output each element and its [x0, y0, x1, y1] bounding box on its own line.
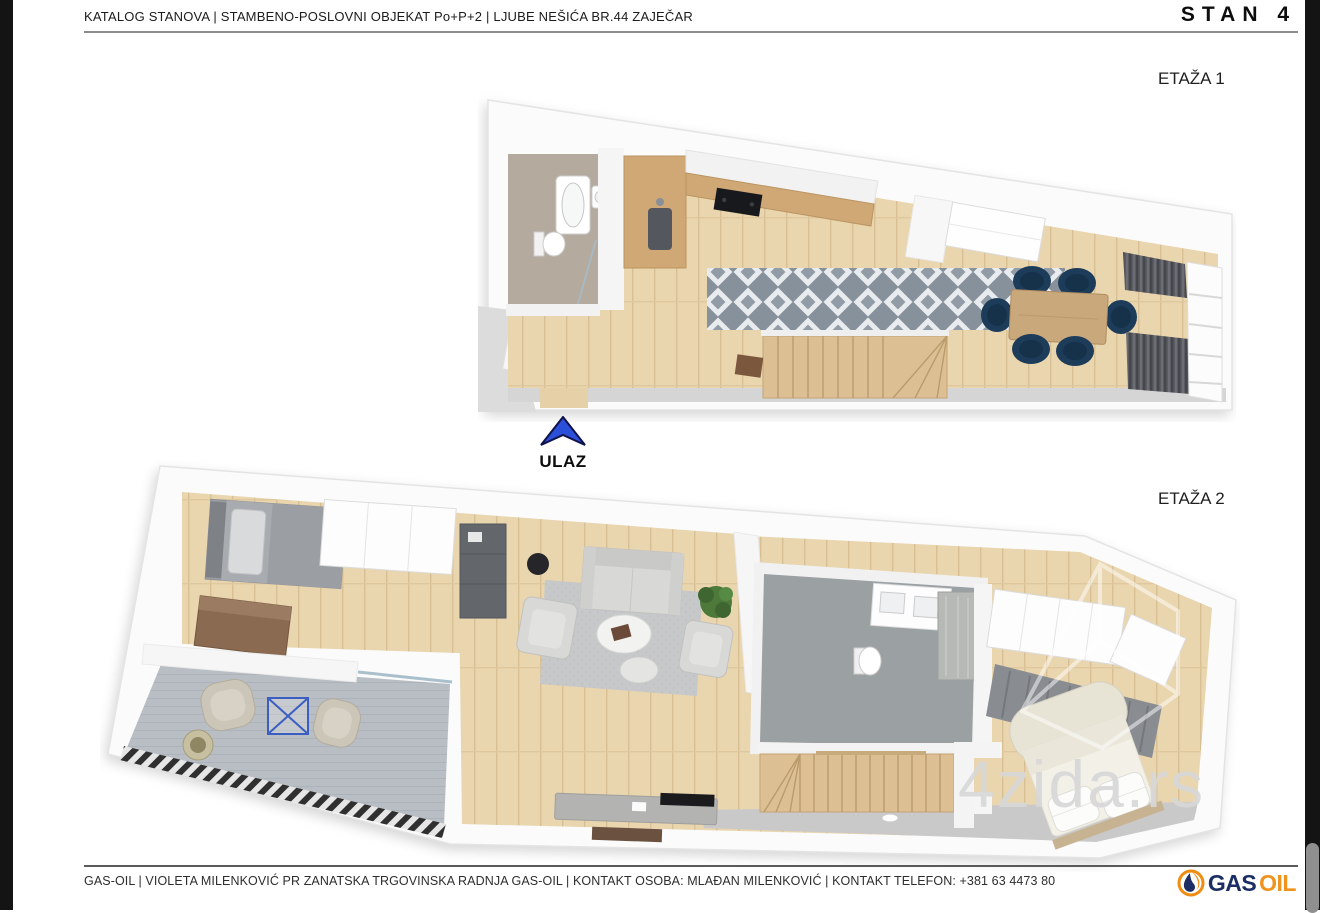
- floor-2-label: ETAŽA 2: [1158, 489, 1225, 509]
- bathroom-south-wall: [506, 304, 600, 316]
- tv-cabinet: [460, 524, 506, 618]
- staircase: [735, 330, 949, 398]
- wardrobe: [320, 499, 456, 574]
- desk: [194, 596, 291, 657]
- kitchen-sink-icon: [648, 208, 672, 250]
- logo-text-oil: OIL: [1259, 870, 1296, 897]
- shower: [938, 592, 976, 680]
- planter-basket: [183, 730, 213, 760]
- window-wall: [1187, 262, 1222, 402]
- pendant-lamp-icon: [527, 553, 549, 575]
- unit-label: STAN 4: [1181, 3, 1296, 27]
- header-divider: [84, 31, 1298, 33]
- toilet-icon: [543, 232, 565, 256]
- floorplan-etaza-1: [478, 92, 1236, 422]
- entrance-marker: ULAZ: [534, 416, 592, 472]
- oil-drop-icon: [1177, 869, 1205, 897]
- watermark-text: 4zida.rs: [958, 746, 1205, 822]
- bathroom-2: [750, 562, 988, 758]
- sofa: [580, 547, 684, 616]
- armchair: [678, 619, 734, 679]
- scrollbar-thumb[interactable]: [1306, 843, 1319, 913]
- floor-1-label: ETAŽA 1: [1158, 69, 1225, 89]
- bathroom-kitchen-wall: [598, 148, 624, 310]
- viewer-frame-right: [1305, 0, 1320, 910]
- entry-door-gap: [540, 388, 588, 408]
- dining-chair: [981, 298, 1013, 332]
- bench-icon: [735, 354, 764, 377]
- watermark-cube-icon: [982, 536, 1202, 771]
- doormat: [592, 827, 662, 842]
- dining-chair: [1012, 334, 1050, 364]
- company-logo: GASOIL: [1177, 869, 1296, 897]
- up-arrow-icon: [540, 416, 586, 446]
- viewer-frame-left: [0, 0, 13, 910]
- folding-table: [268, 698, 308, 734]
- dining-chair: [1056, 336, 1094, 366]
- entrance-label: ULAZ: [534, 452, 592, 472]
- toilet2-icon: [859, 647, 881, 675]
- door-handle: [882, 814, 898, 822]
- logo-text-gas: GAS: [1208, 870, 1256, 897]
- footer-divider: [84, 865, 1298, 867]
- footer-contact-text: GAS-OIL | VIOLETA MILENKOVIĆ PR ZANATSKA…: [84, 874, 1055, 888]
- armchair: [516, 596, 579, 661]
- page-title: KATALOG STANOVA | STAMBENO-POSLOVNI OBJE…: [84, 9, 693, 24]
- dining-chair: [1105, 300, 1137, 334]
- side-table: [620, 657, 658, 683]
